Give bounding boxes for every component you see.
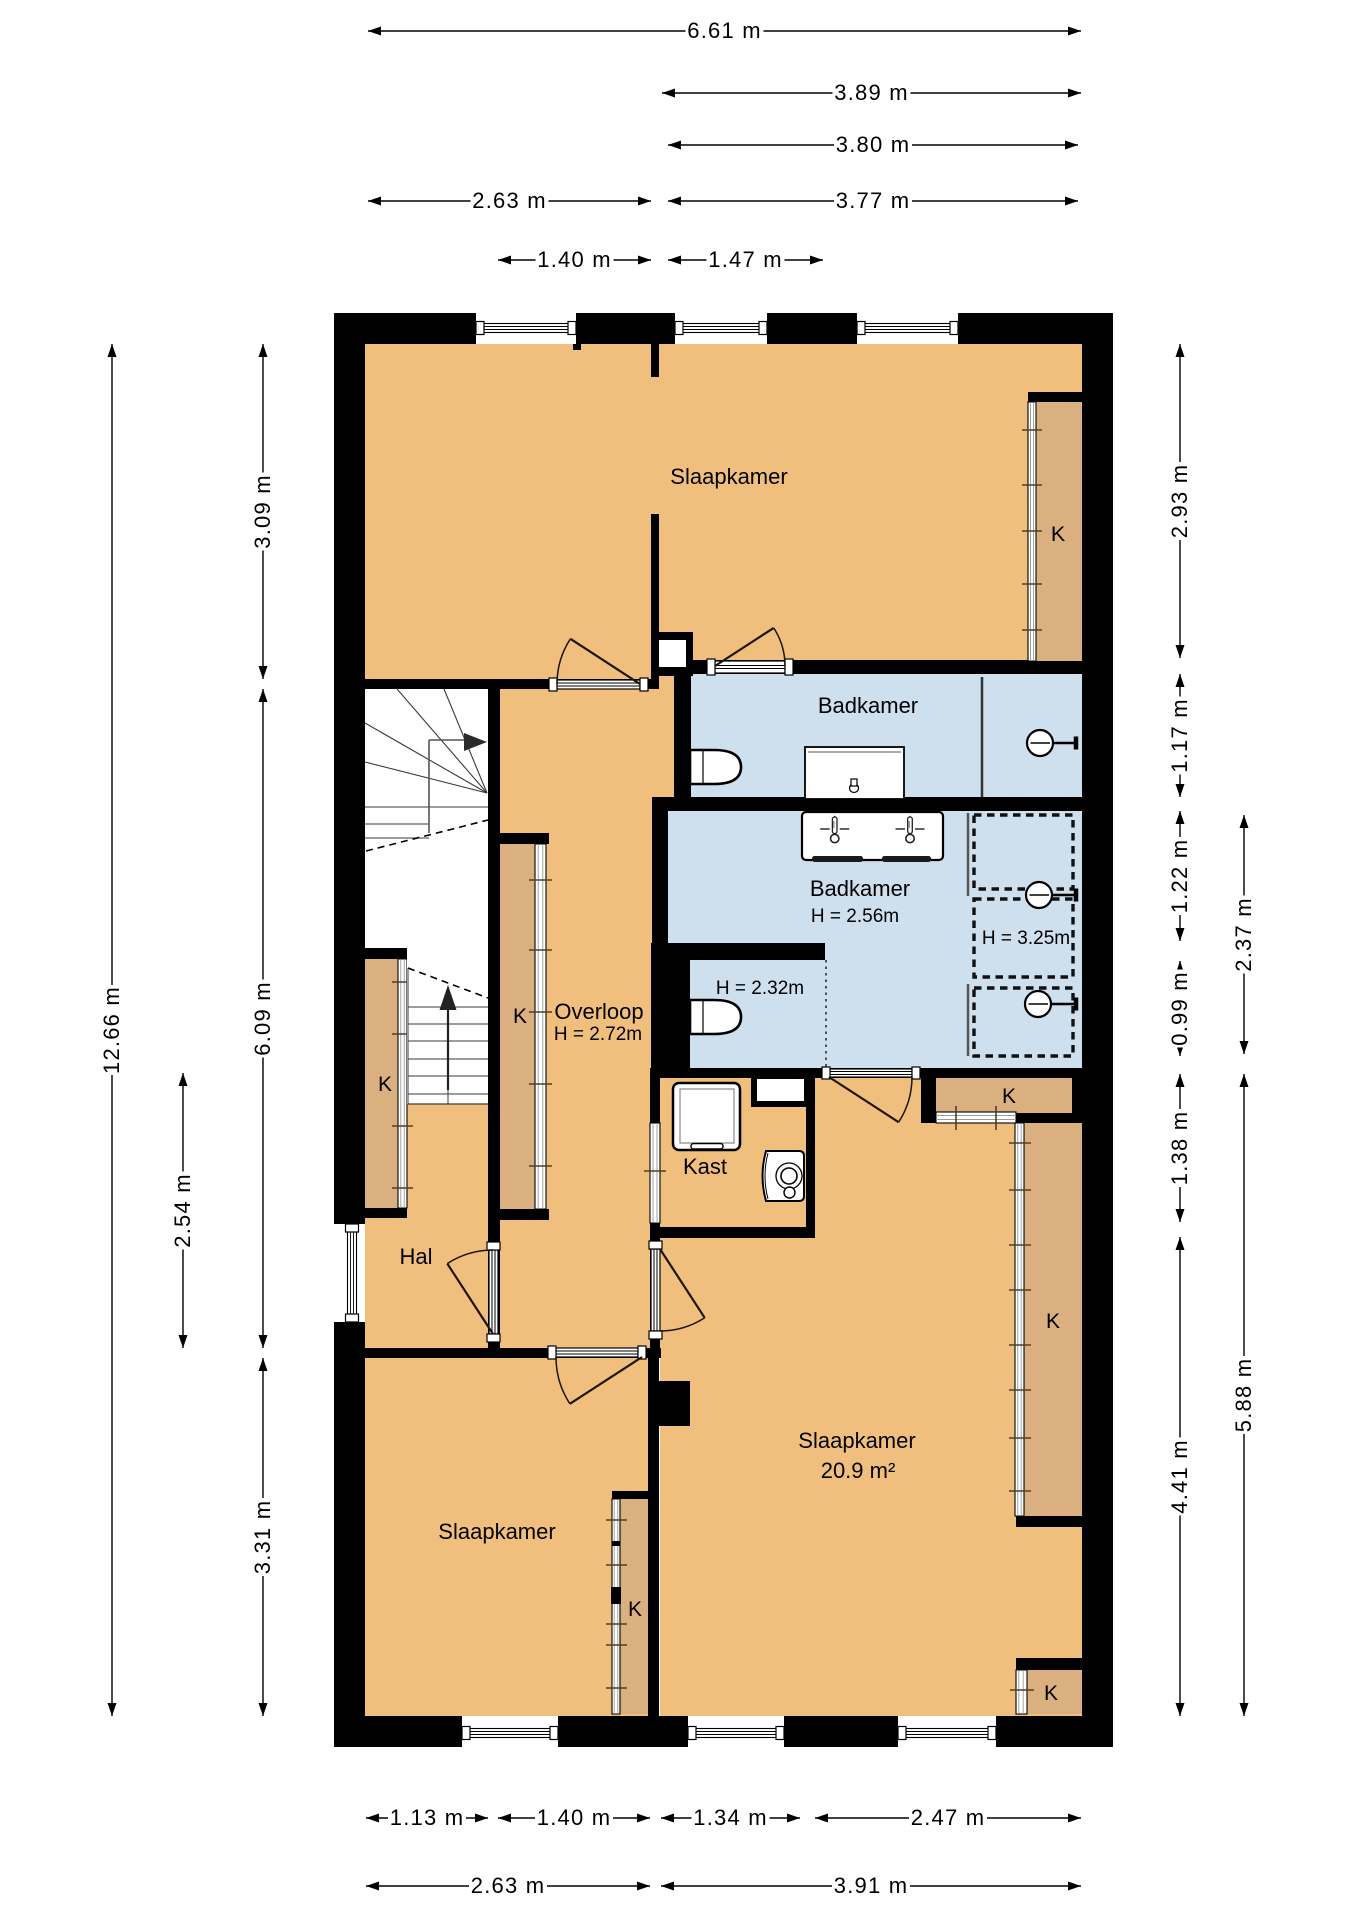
svg-text:H = 2.56m: H = 2.56m xyxy=(811,906,899,927)
svg-text:K: K xyxy=(1044,1682,1058,1705)
svg-text:1.40 m: 1.40 m xyxy=(537,1805,611,1830)
svg-text:6.61 m: 6.61 m xyxy=(687,18,761,43)
svg-text:2.37 m: 2.37 m xyxy=(1231,897,1256,971)
svg-text:Slaapkamer: Slaapkamer xyxy=(438,1519,555,1544)
svg-text:H = 3.25m: H = 3.25m xyxy=(982,928,1070,949)
svg-text:K: K xyxy=(628,1598,642,1621)
svg-text:1.40 m: 1.40 m xyxy=(537,247,611,272)
svg-text:1.22 m: 1.22 m xyxy=(1167,839,1192,913)
svg-text:Hal: Hal xyxy=(399,1244,432,1269)
svg-text:1.38 m: 1.38 m xyxy=(1167,1111,1192,1185)
svg-text:Slaapkamer: Slaapkamer xyxy=(798,1428,915,1453)
svg-text:3.80 m: 3.80 m xyxy=(836,132,910,157)
svg-text:Slaapkamer: Slaapkamer xyxy=(670,464,787,489)
svg-text:K: K xyxy=(1046,1310,1060,1333)
svg-text:3.77 m: 3.77 m xyxy=(836,188,910,213)
svg-text:3.31 m: 3.31 m xyxy=(250,1500,275,1574)
svg-text:6.09 m: 6.09 m xyxy=(250,981,275,1055)
svg-text:2.47 m: 2.47 m xyxy=(911,1805,985,1830)
svg-text:1.47 m: 1.47 m xyxy=(708,247,782,272)
svg-text:Kast: Kast xyxy=(683,1154,727,1179)
svg-text:1.17 m: 1.17 m xyxy=(1167,698,1192,772)
svg-text:H = 2.72m: H = 2.72m xyxy=(554,1024,642,1045)
svg-text:4.41 m: 4.41 m xyxy=(1167,1439,1192,1513)
svg-text:Badkamer: Badkamer xyxy=(818,693,918,718)
svg-text:K: K xyxy=(378,1073,392,1096)
svg-text:H = 2.32m: H = 2.32m xyxy=(716,978,804,999)
svg-text:K: K xyxy=(1051,522,1066,546)
svg-text:2.63 m: 2.63 m xyxy=(471,1873,545,1898)
svg-text:2.54 m: 2.54 m xyxy=(170,1173,195,1247)
svg-text:K: K xyxy=(513,1005,527,1028)
svg-text:20.9 m²: 20.9 m² xyxy=(821,1458,896,1483)
svg-text:0.99 m: 0.99 m xyxy=(1167,971,1192,1045)
svg-text:Overloop: Overloop xyxy=(554,999,643,1024)
svg-text:3.09 m: 3.09 m xyxy=(250,474,275,548)
svg-text:2.63 m: 2.63 m xyxy=(472,188,546,213)
svg-text:Badkamer: Badkamer xyxy=(810,876,910,901)
svg-text:3.91 m: 3.91 m xyxy=(834,1873,908,1898)
svg-text:K: K xyxy=(1002,1085,1016,1108)
svg-text:5.88 m: 5.88 m xyxy=(1231,1358,1256,1432)
svg-text:2.93 m: 2.93 m xyxy=(1167,464,1192,538)
svg-text:12.66 m: 12.66 m xyxy=(99,986,124,1074)
svg-text:3.89 m: 3.89 m xyxy=(834,80,908,105)
svg-text:1.13 m: 1.13 m xyxy=(390,1805,464,1830)
svg-text:1.34 m: 1.34 m xyxy=(693,1805,767,1830)
